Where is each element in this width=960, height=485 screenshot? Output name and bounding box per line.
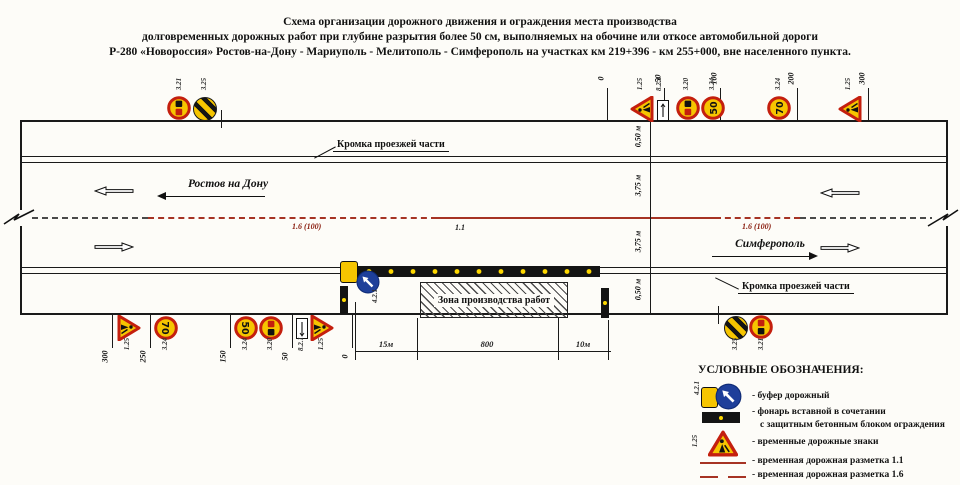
road-break-right-icon (924, 206, 960, 230)
sign-code: 8.2.1 (297, 331, 305, 357)
end-speed-limit-sign-icon (193, 97, 217, 121)
marking-label-right: 1.6 (100) (742, 222, 771, 231)
legend-item-signs: - временные дорожные знаки (752, 437, 879, 447)
scale-bottom-250: 250 (139, 342, 148, 372)
center-marking-gray-left (22, 217, 148, 219)
sign-code: 3.21 (175, 71, 183, 97)
legend-detour-sign-icon (715, 383, 742, 410)
carriageway-bottom-edge-left1 (20, 267, 358, 268)
carriageway-bottom-edge-right2 (600, 273, 948, 274)
dim-lane-top: 3,75 м (634, 171, 643, 201)
end-no-overtaking-sign-icon (167, 96, 191, 120)
dim-approach: 15м (366, 339, 406, 349)
dim-lane-bottom: 3,75 м (634, 227, 643, 257)
legend-item-buffer: - буфер дорожный (752, 391, 830, 401)
legend-title: УСЛОВНЫЕ ОБОЗНАЧЕНИЯ: (698, 364, 864, 376)
sign-code: 1.25 (636, 71, 644, 97)
edge-label-top: Кромка проезжей части (333, 139, 449, 152)
scale-bottom-150: 150 (219, 342, 228, 372)
carriageway-top-edge-line1 (20, 156, 948, 157)
scale-top-300: 300 (858, 64, 867, 94)
sign-code: 8.2.1 (655, 71, 663, 97)
legend-item-marking11: - временная дорожная разметка 1.1 (752, 456, 903, 466)
lane-arrow-left-icon (820, 188, 860, 198)
legend-buffer-code: 4.2.1 (693, 375, 701, 401)
legend-sign-code: 1.25 (691, 428, 699, 454)
edge-label-bottom: Кромка проезжей части (738, 281, 854, 294)
marking-label-left: 1.6 (100) (292, 222, 321, 231)
roadworks-sign-icon (838, 96, 862, 122)
dim-shoulder-top: 0,50 м (634, 122, 643, 152)
sign-code: 1.25 (123, 331, 131, 357)
lane-arrow-left-icon (94, 186, 134, 196)
legend-marking-1-1-icon (700, 462, 746, 464)
center-marking-1-6-right (715, 217, 800, 219)
speed-limit-50-sign-icon: 50 (701, 96, 725, 120)
carriageway-top-edge-line2 (20, 162, 948, 163)
sign-code: 3.25 (200, 71, 208, 97)
sign-code-buffer: 4.2.1 (371, 283, 379, 309)
direction-arrow-top-icon (157, 192, 166, 200)
dim-shoulder-bottom: 0,50 м (634, 275, 643, 305)
no-overtaking-sign-icon (676, 96, 700, 120)
carriageway-bottom-edge-right1 (600, 267, 948, 268)
dim-workzone-length: 800 (452, 339, 522, 349)
work-zone-label: Зона производства работ (434, 294, 554, 307)
scale-top-200: 200 (787, 64, 796, 94)
scale-bottom-0: 0 (341, 342, 350, 372)
scale-bottom-300: 300 (101, 342, 110, 372)
sign-code: 3.24 (708, 71, 716, 97)
legend-lantern-icon (702, 412, 740, 423)
roadworks-sign-icon (630, 96, 654, 122)
scale-top-0: 0 (597, 64, 606, 94)
scheme-title-line1: Схема организации дорожного движения и о… (0, 16, 960, 28)
vertical-dimension-line (650, 121, 651, 314)
sign-code: 1.25 (844, 71, 852, 97)
legend-item-marking16: - временная дорожная разметка 1.6 (752, 470, 903, 480)
legend-roadworks-sign-icon (708, 430, 738, 457)
sign-code: 3.24 (161, 331, 169, 357)
work-zone: Зона производства работ (420, 282, 568, 318)
sign-code: 3.20 (682, 71, 690, 97)
carriageway-bottom-edge-left2 (20, 273, 358, 274)
speed-limit-70-sign-icon: 70 (767, 96, 791, 120)
protective-barrier (358, 266, 600, 277)
svg-text:50: 50 (709, 101, 720, 115)
direction-label-top: Ростов на Дону (128, 178, 328, 190)
svg-text:70: 70 (775, 101, 786, 115)
scheme-title-line2: долговременных дорожных работ при глубин… (0, 31, 960, 43)
road-top-edge-line (20, 120, 948, 122)
sign-code: 3.20 (266, 331, 274, 357)
lantern-post-icon (601, 288, 609, 318)
legend-item-lantern-1: - фонарь вставной в сочетании (752, 407, 886, 417)
direction-arrow-bottom-icon (809, 252, 818, 260)
lane-arrow-right-icon (820, 243, 860, 253)
sign-code: 1.25 (317, 331, 325, 357)
center-marking-1-1 (437, 217, 715, 219)
sign-code: 3.24 (774, 71, 782, 97)
marking-label-center: 1.1 (455, 223, 465, 232)
road-break-left-icon (2, 206, 38, 230)
center-marking-1-6-left (148, 217, 437, 219)
sign-code: 3.21 (757, 331, 765, 357)
scheme-title-line3: Р-280 «Новороссия» Ростов-на-Дону - Мари… (0, 46, 960, 58)
edge-label-bottom-leader (715, 277, 739, 289)
dimension-line (355, 351, 611, 352)
distance-plate-icon (657, 100, 669, 121)
legend-item-lantern-2: с защитным бетонным блоком ограждения (760, 420, 945, 430)
sign-code: 3.24 (241, 331, 249, 357)
legend-marking-1-6-icon (700, 476, 746, 478)
sign-code: 3.25 (731, 331, 739, 357)
traffic-scheme-canvas: Схема организации дорожного движения и о… (0, 0, 960, 485)
lantern-post-icon (340, 286, 348, 314)
scale-bottom-50: 50 (281, 342, 290, 372)
lane-arrow-right-icon (94, 242, 134, 252)
dim-exit: 10м (563, 339, 603, 349)
